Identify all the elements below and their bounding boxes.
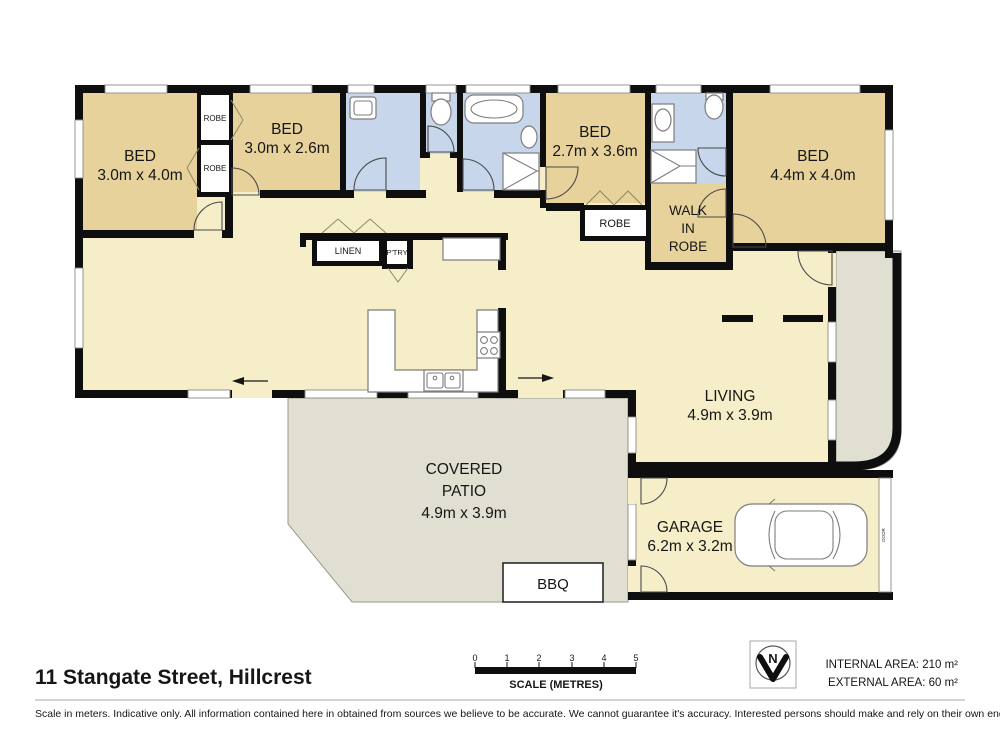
scale-tick-0: 0	[472, 653, 477, 663]
wir-label-3: ROBE	[669, 239, 707, 254]
bed1-dims: 3.0m x 4.0m	[97, 167, 182, 184]
patio-label-2: PATIO	[442, 483, 486, 500]
floorplan-drawing: BED 3.0m x 4.0m BED 3.0m x 2.6m BED 2.7m…	[0, 0, 1000, 738]
living-dims: 4.9m x 3.9m	[687, 407, 772, 424]
bathtub-icon	[465, 95, 523, 123]
bed4-dims: 4.4m x 4.0m	[770, 167, 855, 184]
bed2-label: BED	[271, 121, 303, 138]
disclaimer-text: Scale in meters. Indicative only. All in…	[35, 708, 1000, 720]
robe-bed1-label: ROBE	[204, 164, 227, 173]
robe-bed2-label: ROBE	[204, 114, 227, 123]
garage-label: GARAGE	[657, 519, 723, 536]
floorplan-page: BED 3.0m x 4.0m BED 3.0m x 2.6m BED 2.7m…	[0, 0, 1000, 738]
scale-tick-1: 1	[504, 653, 509, 663]
linen-label: LINEN	[335, 246, 362, 256]
scale-bar-label: SCALE (METRES)	[509, 679, 603, 691]
robe-bed3-label: ROBE	[599, 218, 630, 230]
bed3-label: BED	[579, 124, 611, 141]
scale-tick-4: 4	[601, 653, 606, 663]
page-title: 11 Stangate Street, Hillcrest	[35, 666, 312, 689]
scale-bar-rule	[475, 667, 636, 674]
room-deck	[836, 251, 901, 470]
kitchen-side-bench	[443, 238, 500, 260]
shower-icon	[503, 153, 539, 190]
bed2-dims: 3.0m x 2.6m	[244, 140, 329, 157]
garage-dims: 6.2m x 3.2m	[647, 538, 732, 555]
bed4-label: BED	[797, 148, 829, 165]
patio-dims: 4.9m x 3.9m	[421, 505, 506, 522]
bbq-label: BBQ	[537, 576, 569, 593]
north-label: N	[768, 651, 777, 666]
wir-label-2: IN	[681, 221, 695, 236]
basin-icon	[521, 126, 537, 148]
wir-label-1: WALK	[669, 203, 707, 218]
bed3-dims: 2.7m x 3.6m	[552, 143, 637, 160]
cooktop-icon	[477, 332, 500, 358]
scale-tick-3: 3	[569, 653, 574, 663]
area-figures: INTERNAL AREA: 210 m² EXTERNAL AREA: 60 …	[825, 659, 958, 689]
garage-door-label: DOOR	[881, 527, 886, 541]
living-label: LIVING	[705, 388, 756, 405]
external-area: EXTERNAL AREA: 60 m²	[828, 677, 958, 689]
bed1-label: BED	[124, 148, 156, 165]
patio-label-1: COVERED	[426, 461, 503, 478]
pantry-label: P'TRY	[386, 248, 407, 257]
north-arrow-icon: N	[750, 641, 796, 688]
scale-tick-2: 2	[536, 653, 541, 663]
scale-bar: 0 1 2 3 4 5 SCALE (METRES)	[472, 653, 638, 691]
internal-area: INTERNAL AREA: 210 m²	[825, 659, 958, 671]
scale-tick-5: 5	[633, 653, 638, 663]
footer: 11 Stangate Street, Hillcrest 0 1 2 3 4 …	[35, 641, 1000, 720]
car-icon	[735, 499, 867, 571]
